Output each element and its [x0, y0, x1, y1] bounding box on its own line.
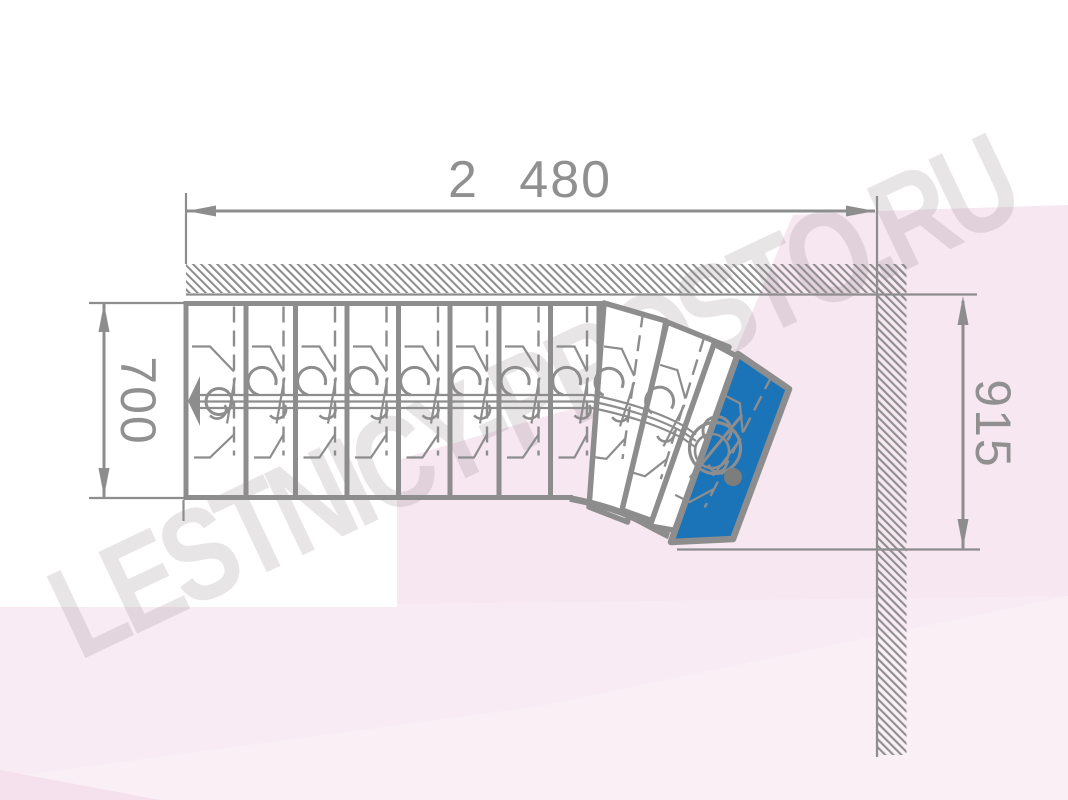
- svg-text:2 480: 2 480: [448, 151, 612, 209]
- svg-text:915: 915: [965, 379, 1021, 468]
- svg-text:700: 700: [110, 356, 166, 445]
